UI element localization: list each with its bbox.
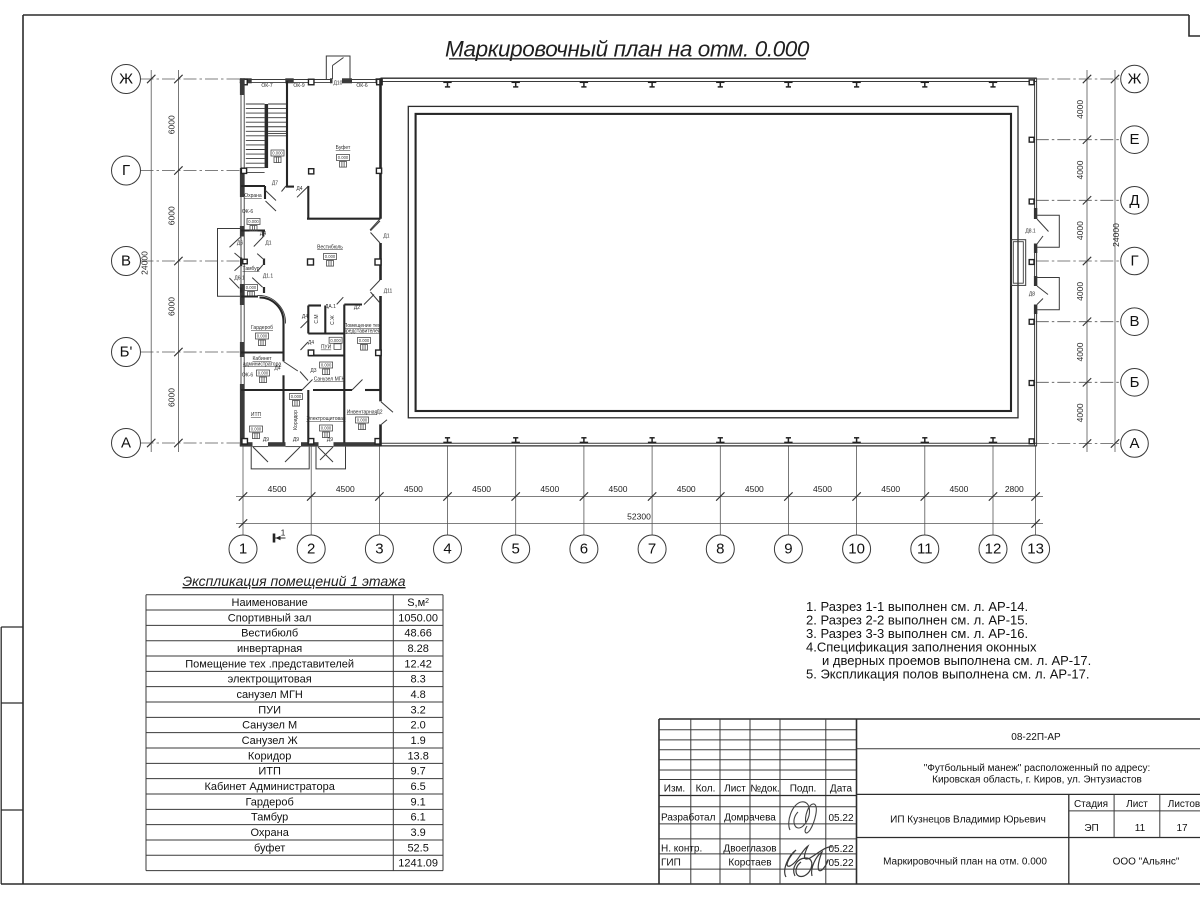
svg-text:В: В [1129, 313, 1139, 330]
svg-text:08-22П-АР: 08-22П-АР [1011, 732, 1061, 743]
svg-text:5: 5 [512, 541, 520, 558]
svg-text:4500: 4500 [813, 484, 832, 494]
svg-text:Ж: Ж [1128, 71, 1142, 88]
svg-text:2800: 2800 [1005, 484, 1024, 494]
svg-text:4500: 4500 [336, 484, 355, 494]
svg-text:Д2: Д2 [354, 305, 360, 311]
svg-text:Д8.1: Д8.1 [1025, 229, 1036, 235]
svg-text:1: 1 [281, 528, 286, 538]
svg-text:13: 13 [1027, 541, 1044, 558]
svg-text:6: 6 [580, 541, 588, 558]
svg-text:Коридор: Коридор [293, 410, 299, 430]
svg-text:Г: Г [122, 162, 130, 179]
svg-text:Маркировочный план на отм. 0.0: Маркировочный план на отм. 0.000 [445, 37, 810, 62]
svg-text:8: 8 [716, 541, 724, 558]
svg-text:ГИП: ГИП [661, 858, 681, 869]
svg-text:Д6: Д6 [237, 241, 243, 247]
svg-text:6000: 6000 [167, 297, 177, 316]
svg-text:Д4: Д4 [296, 186, 302, 192]
svg-text:0.000: 0.000 [338, 155, 349, 160]
svg-text:4500: 4500 [268, 484, 287, 494]
svg-text:Д1.1: Д1.1 [263, 274, 274, 280]
svg-text:11: 11 [1135, 823, 1146, 834]
svg-text:12: 12 [985, 541, 1002, 558]
svg-text:Листов: Листов [1168, 799, 1200, 810]
svg-text:Н. контр.: Н. контр. [661, 844, 702, 855]
svg-text:А: А [1129, 435, 1139, 452]
svg-text:"Футбольный манеж" расположенн: "Футбольный манеж" расположенный по адре… [924, 762, 1151, 774]
svg-text:Д: Д [1129, 192, 1139, 209]
svg-text:1241.09: 1241.09 [398, 858, 438, 870]
svg-text:52.5: 52.5 [407, 842, 428, 854]
svg-text:0.000: 0.000 [272, 151, 283, 156]
svg-text:Разработал: Разработал [661, 812, 716, 824]
svg-text:4000: 4000 [1075, 403, 1085, 422]
svg-text:Д11: Д11 [384, 289, 393, 295]
svg-text:0.000: 0.000 [291, 394, 302, 399]
svg-text:4000: 4000 [1075, 342, 1085, 361]
svg-text:Гардероб: Гардероб [245, 796, 293, 808]
svg-text:ОК-6: ОК-6 [356, 83, 367, 89]
svg-text:0.000: 0.000 [321, 426, 332, 431]
svg-text:Коридор: Коридор [248, 750, 291, 762]
svg-text:Охрана: Охрана [250, 827, 289, 839]
svg-text:Д10: Д10 [334, 81, 343, 87]
svg-text:ООО "Альянс": ООО "Альянс" [1113, 857, 1180, 868]
svg-text:ПУИ: ПУИ [258, 704, 281, 716]
svg-text:4500: 4500 [677, 484, 696, 494]
svg-text:Инвентарная: Инвентарная [347, 410, 378, 416]
svg-text:0.000: 0.000 [258, 371, 269, 376]
svg-text:Г: Г [1130, 253, 1138, 270]
svg-text:Д7: Д7 [272, 181, 278, 187]
svg-text:4500: 4500 [540, 484, 559, 494]
svg-text:Д3: Д3 [310, 368, 316, 374]
svg-text:0.000: 0.000 [246, 285, 257, 290]
svg-text:52300: 52300 [627, 512, 651, 522]
svg-text:Кол.: Кол. [696, 784, 716, 795]
svg-text:13.8: 13.8 [407, 750, 428, 762]
svg-text:Д2: Д2 [376, 410, 382, 416]
svg-text:Помещение тех .представителей: Помещение тех .представителей [185, 658, 354, 670]
svg-text:1: 1 [239, 541, 247, 558]
svg-text:Дата: Дата [830, 784, 853, 795]
svg-text:7: 7 [648, 541, 656, 558]
svg-text:Д1: Д1 [383, 234, 389, 240]
svg-text:6000: 6000 [167, 115, 177, 134]
svg-text:Домрачева: Домрачева [724, 813, 776, 824]
svg-text:6.1: 6.1 [411, 812, 426, 824]
svg-text:С.Ж: С.Ж [330, 315, 336, 325]
svg-text:буфет: буфет [254, 842, 285, 854]
svg-text:Гардероб: Гардероб [251, 325, 273, 331]
svg-text:5. Экспликация полов выполнена: 5. Экспликация полов выполнена см. л. АР… [806, 667, 1090, 682]
svg-text:8.3: 8.3 [411, 674, 426, 686]
svg-text:9.1: 9.1 [411, 796, 426, 808]
svg-text:ЭП: ЭП [1084, 823, 1098, 834]
svg-text:Охрана: Охрана [244, 193, 262, 199]
svg-text:Тамбур: Тамбур [243, 266, 260, 272]
svg-text:4000: 4000 [1075, 221, 1085, 240]
svg-text:Б': Б' [120, 344, 133, 361]
svg-text:0.000: 0.000 [257, 334, 268, 339]
svg-text:3.9: 3.9 [411, 827, 426, 839]
svg-text:санузел МГН: санузел МГН [236, 689, 302, 701]
svg-text:4500: 4500 [609, 484, 628, 494]
svg-text:№док.: №док. [750, 784, 779, 795]
svg-text:0.000: 0.000 [321, 363, 332, 368]
svg-text:24000: 24000 [140, 251, 150, 275]
svg-text:Д1: Д1 [265, 241, 271, 247]
svg-text:ОК-9: ОК-9 [293, 83, 304, 89]
svg-text:Маркировочный план на отм. 0.0: Маркировочный план на отм. 0.000 [883, 857, 1047, 868]
svg-text:Стадия: Стадия [1074, 799, 1108, 810]
svg-text:4000: 4000 [1075, 160, 1085, 179]
svg-text:Д9: Д9 [263, 437, 269, 443]
svg-text:0.000: 0.000 [325, 254, 336, 259]
svg-text:Вестибюль: Вестибюль [317, 245, 343, 251]
svg-text:Б: Б [1130, 374, 1140, 391]
svg-text:инвертарная: инвертарная [237, 643, 302, 655]
svg-text:Санузел Ж: Санузел Ж [242, 735, 298, 747]
svg-text:10: 10 [848, 541, 865, 558]
svg-text:С.М: С.М [314, 314, 320, 323]
svg-text:11: 11 [917, 541, 933, 558]
svg-text:4500: 4500 [881, 484, 900, 494]
svg-text:электрощитовая: электрощитовая [228, 674, 312, 686]
svg-text:А: А [121, 435, 131, 452]
svg-text:1.9: 1.9 [411, 735, 426, 747]
svg-text:Кировская область, г. Киров, у: Кировская область, г. Киров, ул. Энтузиа… [932, 774, 1142, 786]
svg-text:4: 4 [443, 541, 451, 558]
svg-text:Изм.: Изм. [664, 784, 685, 795]
svg-text:Санузел М: Санузел М [242, 720, 297, 732]
svg-text:Ж: Ж [119, 71, 133, 88]
svg-text:4000: 4000 [1075, 100, 1085, 119]
svg-text:Лист: Лист [724, 784, 746, 795]
svg-text:4000: 4000 [1075, 282, 1085, 301]
svg-text:ИТП: ИТП [251, 412, 262, 418]
svg-text:В: В [121, 253, 131, 270]
svg-text:4.8: 4.8 [411, 689, 426, 701]
svg-text:05.22: 05.22 [828, 844, 853, 855]
svg-text:Электрощитовая: Электрощитовая [306, 416, 346, 422]
svg-text:0.000: 0.000 [330, 338, 341, 343]
svg-text:Лист: Лист [1126, 799, 1148, 810]
svg-text:3: 3 [375, 541, 383, 558]
svg-text:ИП Кузнецов Владимир Юрьевич: ИП Кузнецов Владимир Юрьевич [890, 815, 1046, 826]
svg-text:Кабинет Администратора: Кабинет Администратора [204, 781, 335, 793]
svg-text:2.0: 2.0 [411, 720, 426, 732]
svg-text:17: 17 [1176, 823, 1188, 834]
svg-text:6.5: 6.5 [411, 781, 426, 793]
svg-text:48.66: 48.66 [404, 628, 432, 640]
svg-text:0.000: 0.000 [248, 219, 259, 224]
svg-text:Д4: Д4 [308, 340, 314, 346]
svg-text:Д8: Д8 [1029, 292, 1035, 298]
svg-text:ОК-6: ОК-6 [242, 373, 253, 379]
svg-text:ИТП: ИТП [258, 766, 281, 778]
svg-text:12.42: 12.42 [404, 658, 432, 670]
svg-text:8.28: 8.28 [407, 643, 428, 655]
svg-text:9.7: 9.7 [411, 766, 426, 778]
svg-text:Санузел МГН: Санузел МГН [314, 376, 346, 382]
svg-text:Двоеглазов: Двоеглазов [723, 844, 776, 855]
svg-text:05.22: 05.22 [828, 813, 853, 824]
svg-text:Буфет: Буфет [336, 145, 351, 151]
svg-text:Тамбур: Тамбур [251, 812, 288, 824]
svg-text:Вестибюлб: Вестибюлб [241, 628, 298, 640]
svg-text:Д9: Д9 [293, 437, 299, 443]
svg-text:ДА.1: ДА.1 [325, 304, 336, 310]
svg-text:3.2: 3.2 [411, 704, 426, 716]
svg-text:0.000: 0.000 [357, 418, 368, 423]
svg-text:Коротаев: Коротаев [728, 858, 771, 869]
svg-text:ОК-7: ОК-7 [261, 83, 272, 89]
svg-text:24000: 24000 [1111, 223, 1121, 247]
svg-text:6000: 6000 [167, 206, 177, 225]
svg-text:ПУИ: ПУИ [321, 345, 332, 351]
svg-text:Д4: Д4 [260, 231, 266, 237]
svg-text:4500: 4500 [949, 484, 968, 494]
svg-text:4500: 4500 [404, 484, 423, 494]
svg-text:Е: Е [1129, 131, 1139, 148]
svg-text:представителей: представителей [343, 328, 381, 335]
svg-text:0.000: 0.000 [251, 427, 262, 432]
svg-text:9: 9 [784, 541, 792, 558]
svg-text:0.000: 0.000 [359, 338, 370, 343]
svg-text:1050.00: 1050.00 [398, 612, 438, 624]
svg-text:Д4: Д4 [302, 314, 308, 320]
svg-text:ОК-6: ОК-6 [242, 209, 253, 215]
svg-text:6000: 6000 [167, 388, 177, 407]
svg-text:Подп.: Подп. [790, 784, 817, 795]
svg-text:Наименование: Наименование [232, 597, 308, 609]
svg-text:2: 2 [307, 541, 315, 558]
svg-text:05.22: 05.22 [828, 858, 853, 869]
svg-text:Спортивный зал: Спортивный зал [228, 612, 312, 624]
svg-text:Д6.1: Д6.1 [234, 276, 245, 282]
svg-text:Экспликация помещений 1 этажа: Экспликация помещений 1 этажа [182, 573, 405, 589]
svg-text:Д4: Д4 [274, 366, 280, 372]
svg-text:4500: 4500 [472, 484, 491, 494]
svg-text:4500: 4500 [745, 484, 764, 494]
